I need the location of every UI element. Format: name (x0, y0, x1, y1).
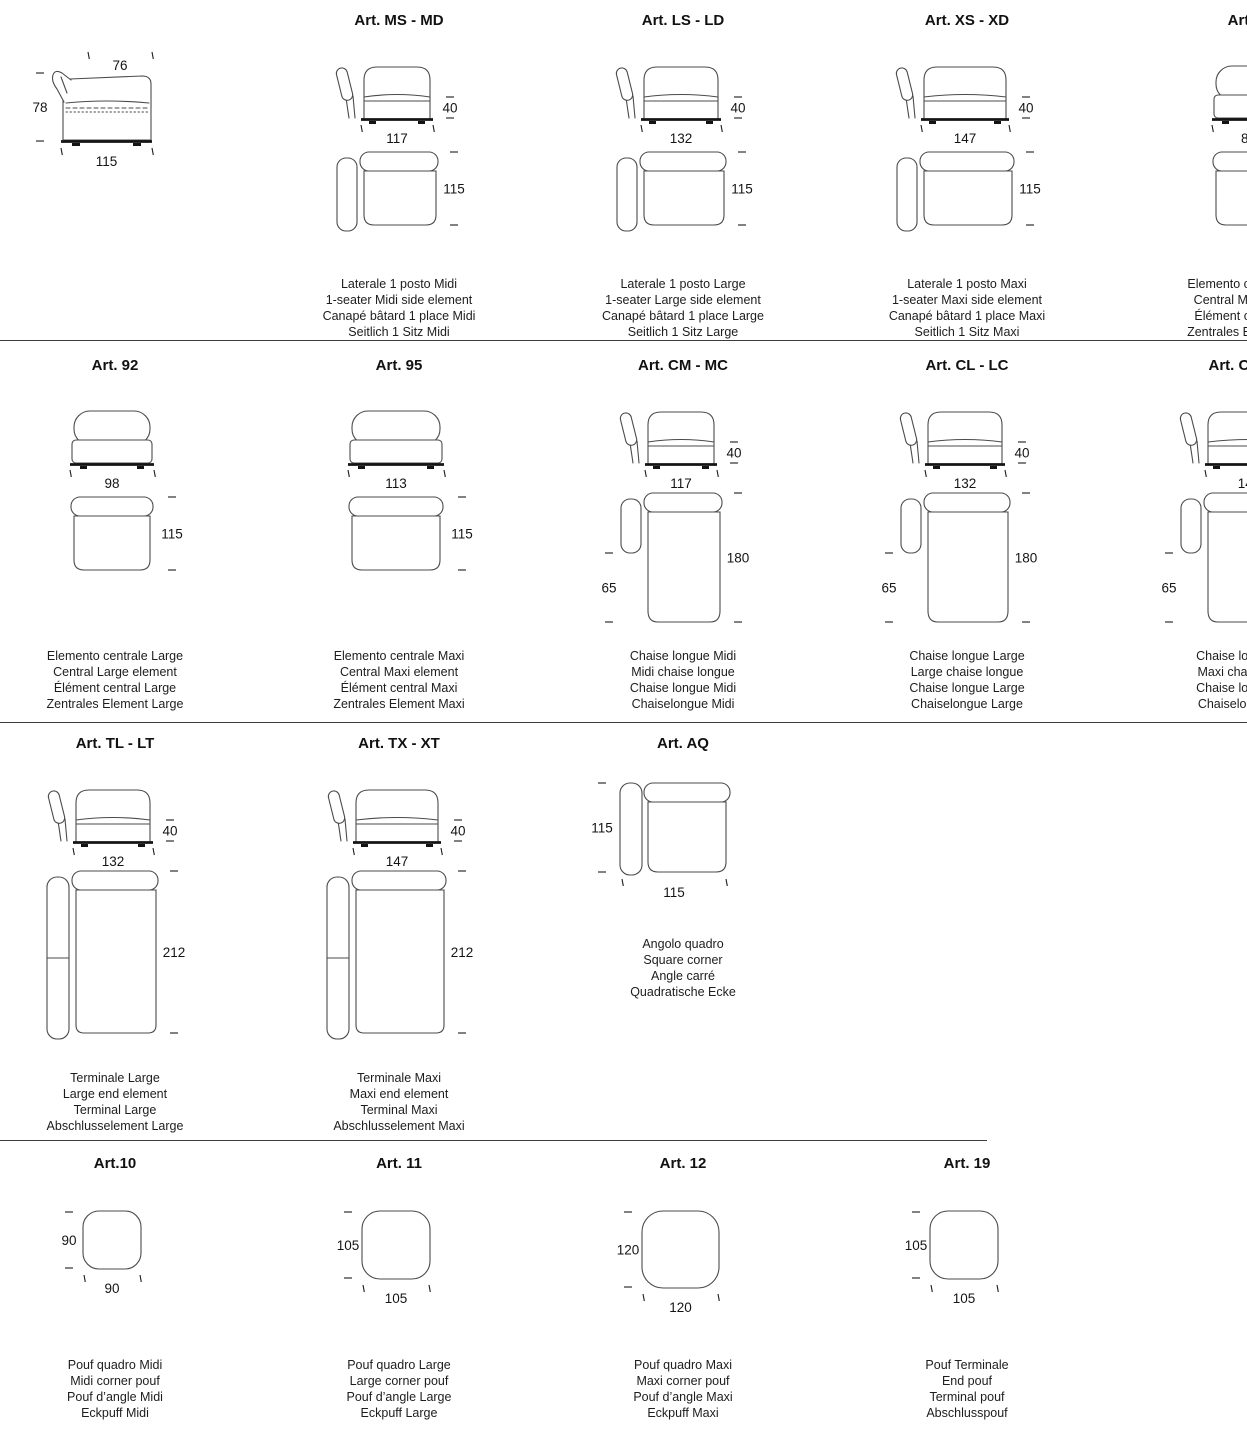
dimension-label: 76 (112, 58, 127, 73)
caption-line: Chaise longue Large (909, 680, 1024, 696)
caption-line: Chaise longue Midi (630, 648, 736, 664)
dimension-label: 40 (1018, 101, 1033, 116)
dimension-label: 40 (726, 446, 741, 461)
module-title: Art. XS - XD (925, 12, 1009, 30)
module-title: Art. CL - LC (925, 357, 1008, 375)
top-view-drawing: 115 (337, 152, 465, 231)
dimension-label: 115 (591, 821, 613, 836)
module-captions: Pouf quadro MaxiMaxi corner poufPouf d’a… (633, 1357, 732, 1421)
caption-line: 1-seater Large side element (602, 292, 764, 308)
caption-line: Chaiselongue Maxi (1196, 696, 1247, 712)
caption-line: End pouf (925, 1373, 1008, 1389)
front-view-drawing: 40132 (47, 790, 177, 869)
caption-line: Large corner pouf (347, 1373, 452, 1389)
dimension-label: 105 (385, 1291, 408, 1306)
caption-line: Midi chaise longue (630, 664, 736, 680)
caption-line: 1-seater Maxi side element (889, 292, 1045, 308)
dimension-label: 105 (337, 1238, 360, 1253)
caption-line: Pouf d’angle Maxi (633, 1389, 732, 1405)
dimension-label: 40 (162, 824, 177, 839)
module-title: Art. CX - XC (1208, 357, 1247, 375)
module-cell-art-cx-xc: Art. CX - XC4014718065Chaise longue Maxi… (1136, 357, 1247, 712)
caption-line: Large end element (47, 1086, 184, 1102)
top-view-drawing: 212 (47, 871, 185, 1039)
caption-line: Abschlusselement Large (47, 1118, 184, 1134)
caption-line: Élément central Maxi (333, 680, 464, 696)
technical-drawing: 40132115 (568, 54, 798, 253)
caption-line: 1-seater Midi side element (323, 292, 476, 308)
dimension-label: 40 (442, 101, 457, 116)
dimension-label: 40 (450, 824, 465, 839)
module-captions: Chaise longue MaxiMaxi chaise longueChai… (1196, 648, 1247, 712)
top-view-drawing: 18065 (1161, 493, 1247, 622)
caption-line: Abschlusspouf (925, 1405, 1008, 1421)
caption-line: Eckpuff Midi (67, 1405, 163, 1421)
module-cell-art-ls-ld: Art. LS - LD40132115Laterale 1 posto Lar… (568, 12, 852, 340)
catalog-row-4: Art.109090Pouf quadro MidiMidi corner po… (0, 1141, 1247, 1441)
dimension-label: 90 (104, 1281, 119, 1296)
top-view-drawing: 212 (327, 871, 473, 1039)
caption-line: Central Midi element (1187, 292, 1247, 308)
module-cell-art-19: Art. 19105105Pouf TerminaleEnd poufTermi… (852, 1155, 1136, 1421)
catalog-page: { "page": { "background": "#ffffff", "li… (0, 0, 1247, 1441)
dimension-label: 147 (954, 131, 977, 146)
dimension-label: 90 (61, 1233, 76, 1248)
caption-line: Seitlich 1 Sitz Midi (323, 324, 476, 340)
dimension-label: 115 (443, 182, 465, 197)
module-cell-art-aq: Art. AQ115115Angolo quadroSquare cornerA… (568, 735, 852, 1134)
dimension-label: 65 (1161, 581, 1176, 596)
module-cell-art-12: Art. 12120120Pouf quadro MaxiMaxi corner… (568, 1155, 852, 1421)
technical-drawing: 40132212 (0, 777, 230, 1051)
module-cell-art-ms-md: Art. MS - MD40117115Laterale 1 posto Mid… (284, 12, 568, 340)
side-view-drawing: 7678115 (32, 52, 153, 169)
module-title: Art. MS - MD (354, 12, 443, 30)
catalog-row-3: Art. TL - LT40132212Terminale LargeLarge… (0, 723, 1247, 1140)
module-captions: Terminale LargeLarge end elementTerminal… (47, 1070, 184, 1134)
caption-line: Large chaise longue (909, 664, 1024, 680)
caption-line: Canapé bâtard 1 place Midi (323, 308, 476, 324)
front-view-drawing: 98 (70, 411, 155, 491)
front-view-drawing: 40117 (335, 67, 457, 146)
module-cell-art-tl-lt: Art. TL - LT40132212Terminale LargeLarge… (0, 735, 284, 1134)
module-captions: Chaise longue LargeLarge chaise longueCh… (909, 648, 1024, 712)
dimension-label: 113 (385, 476, 407, 491)
dimension-label: 98 (104, 476, 119, 491)
dimension-label: 105 (953, 1291, 976, 1306)
technical-drawing: 7883115 (1136, 54, 1247, 253)
module-captions: Pouf quadro LargeLarge corner poufPouf d… (347, 1357, 452, 1421)
caption-line: Canapé bâtard 1 place Large (602, 308, 764, 324)
module-captions: Angolo quadroSquare cornerAngle carréQua… (630, 936, 736, 1000)
dimension-label: 115 (161, 527, 183, 542)
caption-line: Laterale 1 posto Maxi (889, 276, 1045, 292)
technical-drawing: 4013218065 (852, 399, 1082, 633)
top-view-drawing: 115 (617, 152, 753, 231)
caption-line: Pouf d’angle Large (347, 1389, 452, 1405)
module-captions: Pouf TerminaleEnd poufTerminal poufAbsch… (925, 1357, 1008, 1421)
module-captions: Elemento centrale MidiCentral Midi eleme… (1187, 276, 1247, 340)
caption-line: Chaise longue Large (909, 648, 1024, 664)
pouf-top-view-drawing: 9090 (61, 1211, 141, 1296)
caption-line: Seitlich 1 Sitz Large (602, 324, 764, 340)
module-cell-art-91: Art. 917883115Elemento centrale MidiCent… (1136, 12, 1247, 340)
dimension-label: 115 (451, 527, 473, 542)
dimension-label: 105 (905, 1238, 928, 1253)
module-title: Art. 19 (944, 1155, 991, 1173)
module-captions: Laterale 1 posto Midi1-seater Midi side … (323, 276, 476, 340)
dimension-label: 40 (730, 101, 745, 116)
top-view-drawing: 18065 (601, 493, 749, 622)
module-captions: Pouf quadro MidiMidi corner poufPouf d’a… (67, 1357, 163, 1421)
top-view-drawing: 115115 (591, 783, 730, 900)
module-title: Art. TX - XT (358, 735, 440, 753)
caption-line: Chaise longue Maxi (1196, 680, 1247, 696)
caption-line: Eckpuff Maxi (633, 1405, 732, 1421)
module-cell-art-10: Art.109090Pouf quadro MidiMidi corner po… (0, 1155, 284, 1421)
technical-drawing: 105105 (284, 1197, 514, 1322)
dimension-label: 40 (1014, 446, 1029, 461)
technical-drawing: 40147212 (284, 777, 514, 1051)
module-title: Art. 91 (1228, 12, 1247, 30)
caption-line: Maxi end element (333, 1086, 464, 1102)
module-cell-art-cl-lc: Art. CL - LC4013218065Chaise longue Larg… (852, 357, 1136, 712)
module-cell-art-cm-mc: Art. CM - MC4011718065Chaise longue Midi… (568, 357, 852, 712)
pouf-top-view-drawing: 105105 (337, 1211, 431, 1306)
caption-line: Chaise longue Maxi (1196, 648, 1247, 664)
dimension-label: 120 (669, 1300, 692, 1315)
catalog-row-2: Art. 9298115Elemento centrale LargeCentr… (0, 341, 1247, 722)
caption-line: Central Maxi element (333, 664, 464, 680)
technical-drawing: 113115 (284, 399, 514, 633)
dimension-label: 132 (670, 131, 693, 146)
module-title: Art. LS - LD (642, 12, 725, 30)
technical-drawing: 4011718065 (568, 399, 798, 633)
module-title: Art.10 (94, 1155, 137, 1173)
caption-line: Terminal Large (47, 1102, 184, 1118)
dimension-label: 212 (451, 945, 474, 960)
caption-line: Angle carré (630, 968, 736, 984)
caption-line: Quadratische Ecke (630, 984, 736, 1000)
front-view-drawing: 40117 (619, 412, 741, 491)
module-cell-side-view: 7678115 (0, 12, 284, 340)
module-title: Art. TL - LT (76, 735, 155, 753)
technical-drawing: 9090 (0, 1197, 230, 1322)
caption-line: Laterale 1 posto Midi (323, 276, 476, 292)
caption-line: Elemento centrale Large (47, 648, 184, 664)
caption-line: Élément central Midi (1187, 308, 1247, 324)
dimension-label: 65 (601, 581, 616, 596)
module-cell-art-11: Art. 11105105Pouf quadro LargeLarge corn… (284, 1155, 568, 1421)
module-cell-art-92: Art. 9298115Elemento centrale LargeCentr… (0, 357, 284, 712)
top-view-drawing: 115 (71, 497, 183, 570)
caption-line: Elemento centrale Midi (1187, 276, 1247, 292)
dimension-label: 117 (670, 476, 692, 491)
pouf-top-view-drawing: 105105 (905, 1211, 999, 1306)
top-view-drawing: 115 (349, 497, 473, 570)
caption-line: Angolo quadro (630, 936, 736, 952)
caption-line: Square corner (630, 952, 736, 968)
caption-line: Eckpuff Large (347, 1405, 452, 1421)
spec-sheet: 7678115Art. MS - MD40117115Laterale 1 po… (0, 0, 1247, 1441)
caption-line: Terminal pouf (925, 1389, 1008, 1405)
module-captions: Laterale 1 posto Maxi1-seater Maxi side … (889, 276, 1045, 340)
dimension-label: 120 (617, 1243, 640, 1258)
dimension-label: 212 (163, 945, 186, 960)
module-title: Art. 95 (376, 357, 423, 375)
caption-line: Zentrales Element Maxi (333, 696, 464, 712)
module-title: Art. AQ (657, 735, 709, 753)
dimension-label: 132 (102, 854, 125, 869)
module-cell-art-tx-xt: Art. TX - XT40147212Terminale MaxiMaxi e… (284, 735, 568, 1134)
dimension-label: 115 (96, 154, 118, 169)
technical-drawing: 40147115 (852, 54, 1082, 253)
module-title: Art. 11 (376, 1155, 422, 1173)
caption-line: Pouf d’angle Midi (67, 1389, 163, 1405)
dimension-label: 115 (1019, 182, 1041, 197)
catalog-row-1: 7678115Art. MS - MD40117115Laterale 1 po… (0, 0, 1247, 340)
module-captions: Elemento centrale MaxiCentral Maxi eleme… (333, 648, 464, 712)
front-view-drawing: 40147 (327, 790, 465, 869)
caption-line: Central Large element (47, 664, 184, 680)
module-title: Art. 92 (92, 357, 139, 375)
caption-line: Midi corner pouf (67, 1373, 163, 1389)
dimension-label: 65 (881, 581, 896, 596)
module-cell-art-95: Art. 95113115Elemento centrale MaxiCentr… (284, 357, 568, 712)
front-view-drawing: 40147 (895, 67, 1033, 146)
top-view-drawing: 115 (897, 152, 1041, 231)
caption-line: Maxi chaise longue (1196, 664, 1247, 680)
caption-line: Zentrales Element Large (47, 696, 184, 712)
pouf-top-view-drawing: 120120 (617, 1211, 720, 1315)
caption-line: Pouf quadro Large (347, 1357, 452, 1373)
caption-line: Seitlich 1 Sitz Maxi (889, 324, 1045, 340)
caption-line: Abschlusselement Maxi (333, 1118, 464, 1134)
dimension-label: 132 (954, 476, 977, 491)
module-captions: Terminale MaxiMaxi end elementTerminal M… (333, 1070, 464, 1134)
caption-line: Canapé bâtard 1 place Maxi (889, 308, 1045, 324)
front-view-drawing: 40132 (615, 67, 745, 146)
technical-drawing: 4014718065 (1136, 399, 1247, 633)
caption-line: Maxi corner pouf (633, 1373, 732, 1389)
module-title: Art. CM - MC (638, 357, 728, 375)
caption-line: Pouf quadro Midi (67, 1357, 163, 1373)
technical-drawing: 105105 (852, 1197, 1082, 1322)
dimension-label: 117 (386, 131, 408, 146)
dimension-label: 78 (32, 100, 47, 115)
front-view-drawing: 40132 (899, 412, 1029, 491)
front-view-drawing: 7883 (1212, 66, 1247, 146)
top-view-drawing: 115 (1213, 152, 1247, 225)
caption-line: Élément central Large (47, 680, 184, 696)
module-captions: Elemento centrale LargeCentral Large ele… (47, 648, 184, 712)
caption-line: Elemento centrale Maxi (333, 648, 464, 664)
dimension-label: 115 (731, 182, 753, 197)
dimension-label: 147 (386, 854, 409, 869)
technical-drawing: 40117115 (284, 54, 514, 253)
technical-drawing: 120120 (568, 1197, 798, 1322)
caption-line: Laterale 1 posto Large (602, 276, 764, 292)
technical-drawing: 98115 (0, 399, 230, 633)
dimension-label: 180 (727, 551, 750, 566)
module-captions: Chaise longue MidiMidi chaise longueChai… (630, 648, 736, 712)
caption-line: Terminale Large (47, 1070, 184, 1086)
caption-line: Terminale Maxi (333, 1070, 464, 1086)
dimension-label: 83 (1241, 131, 1247, 146)
module-captions: Laterale 1 posto Large1-seater Large sid… (602, 276, 764, 340)
caption-line: Pouf Terminale (925, 1357, 1008, 1373)
caption-line: Chaiselongue Midi (630, 696, 736, 712)
technical-drawing: 7678115 (0, 46, 230, 171)
top-view-drawing: 18065 (881, 493, 1037, 622)
dimension-label: 147 (1238, 476, 1247, 491)
front-view-drawing: 40147 (1179, 412, 1247, 491)
caption-line: Pouf quadro Maxi (633, 1357, 732, 1373)
module-title: Art. 12 (660, 1155, 707, 1173)
module-cell-art-xs-xd: Art. XS - XD40147115Laterale 1 posto Max… (852, 12, 1136, 340)
front-view-drawing: 113 (348, 411, 445, 491)
technical-drawing: 115115 (568, 777, 798, 917)
caption-line: Terminal Maxi (333, 1102, 464, 1118)
dimension-label: 180 (1015, 551, 1038, 566)
caption-line: Zentrales Element Midi (1187, 324, 1247, 340)
caption-line: Chaiselongue Large (909, 696, 1024, 712)
caption-line: Chaise longue Midi (630, 680, 736, 696)
dimension-label: 115 (663, 885, 685, 900)
